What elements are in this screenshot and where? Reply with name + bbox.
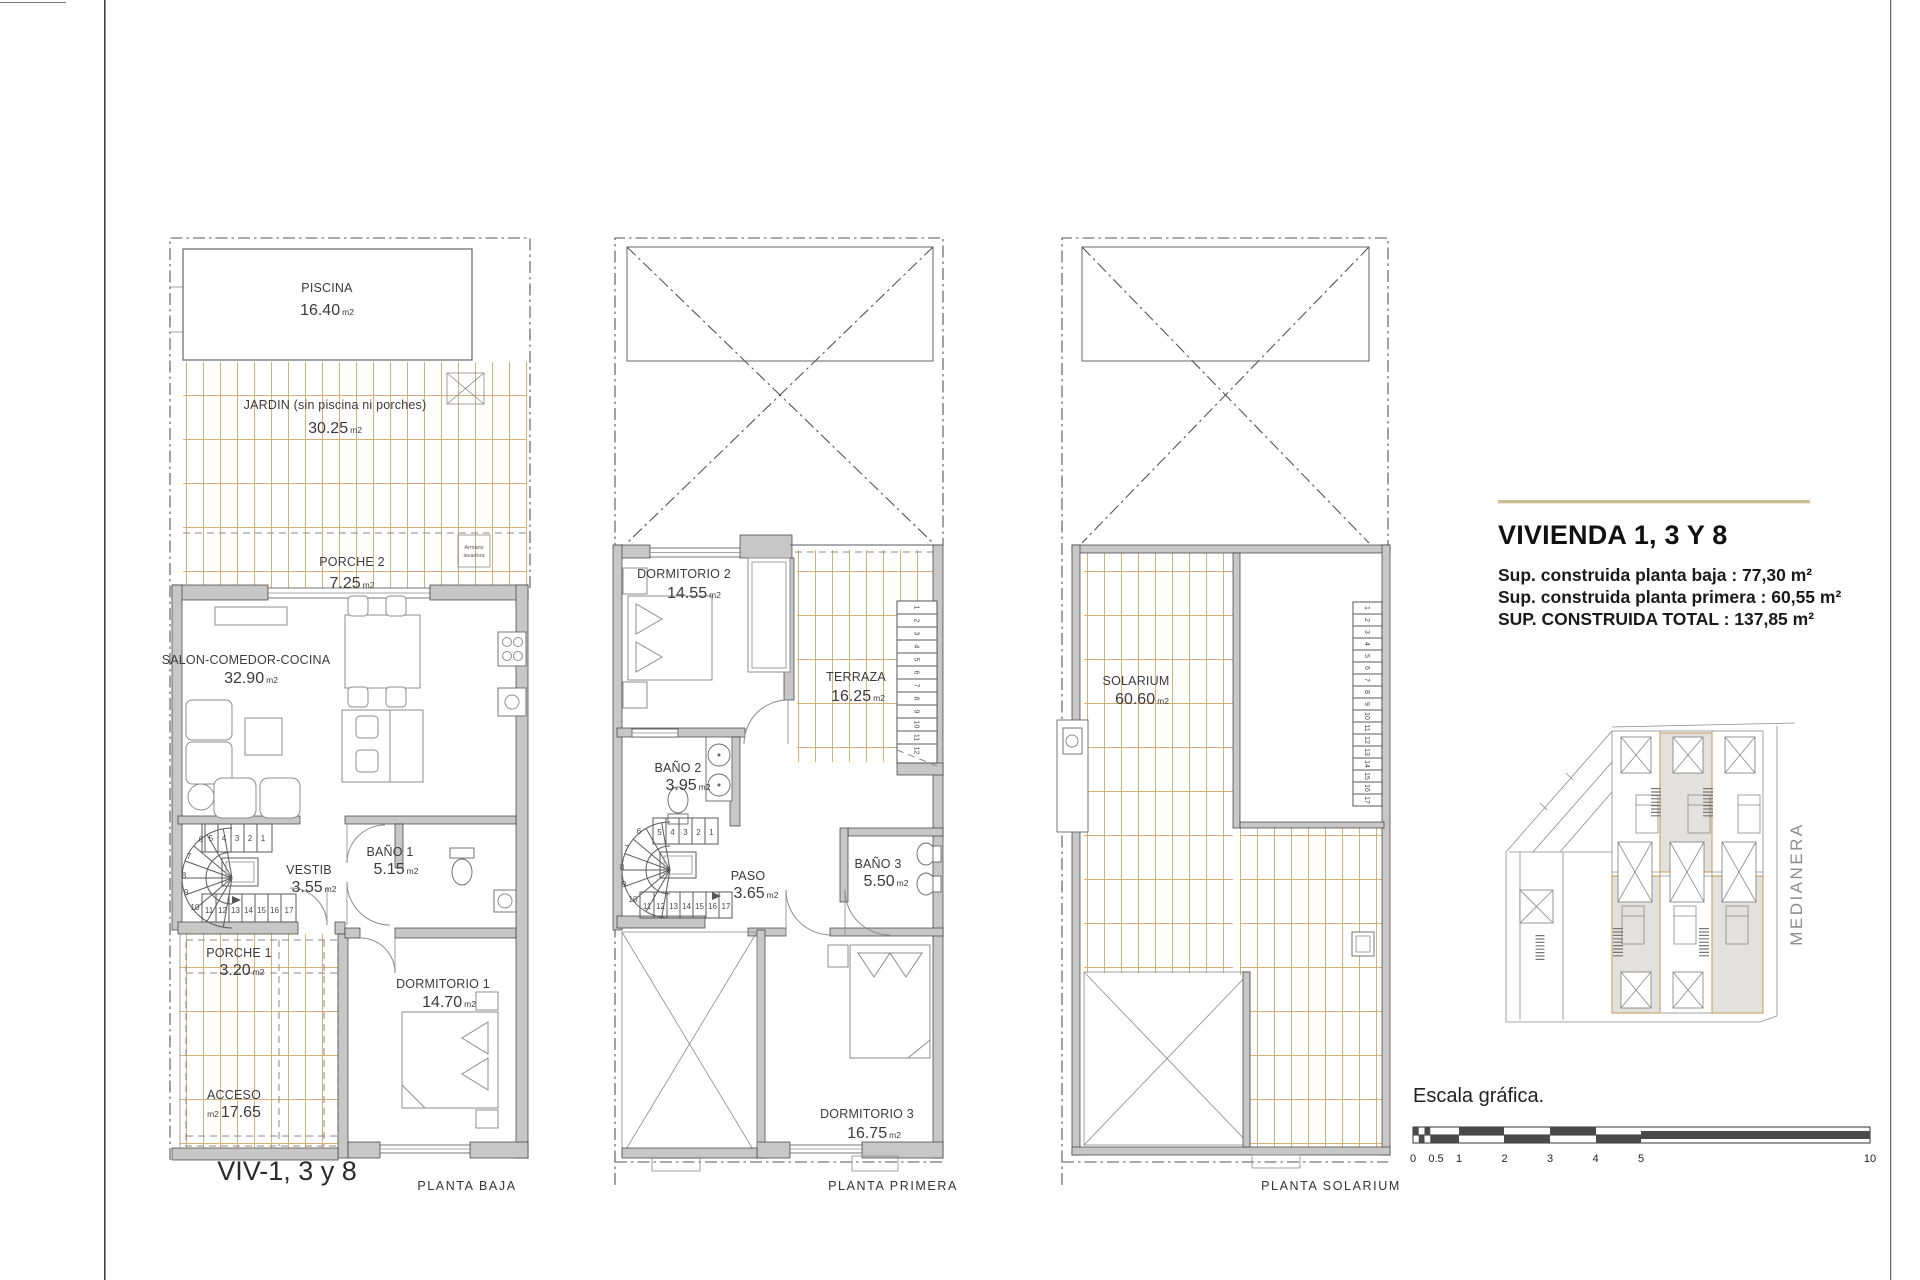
stair-num: 4 bbox=[222, 834, 227, 843]
stair-num: 4 bbox=[670, 828, 675, 837]
stair-num: 6 bbox=[1363, 666, 1370, 670]
accent-rule bbox=[1498, 500, 1810, 504]
stair-num: 8 bbox=[913, 697, 920, 701]
stair-num: 13 bbox=[669, 902, 678, 911]
stair-num: 11 bbox=[205, 906, 214, 915]
room-dorm2-name: DORMITORIO 2 bbox=[637, 567, 731, 581]
garage-void-primera bbox=[622, 932, 757, 1158]
graphic-scale-bar: 0 0.5 1 2 3 4 5 10 bbox=[1410, 1127, 1876, 1165]
scale-tick-0: 0 bbox=[1410, 1153, 1416, 1165]
stair-num: 12 bbox=[656, 902, 665, 911]
scale-caption: Escala gráfica. bbox=[1413, 1085, 1544, 1108]
stair-num: 3 bbox=[913, 632, 920, 636]
room-salon-area: 32.90m2 bbox=[224, 670, 278, 687]
stair-num: 10 bbox=[1363, 712, 1370, 720]
stair-num: 8 bbox=[620, 863, 625, 872]
stair-num: 14 bbox=[1363, 760, 1370, 768]
plan-drawing: Armario lavadora bbox=[0, 0, 1920, 1280]
closet-label-2: lavadora bbox=[463, 553, 485, 559]
site-building bbox=[1509, 731, 1763, 1020]
room-dorm1-area: 14.70m2 bbox=[422, 994, 476, 1011]
scale-tick-05: 0.5 bbox=[1428, 1153, 1443, 1165]
spec-planta-baja: Sup. construida planta baja : 77,30 m² bbox=[1498, 564, 1858, 586]
room-paso-name: PASO bbox=[731, 869, 766, 883]
stair-num: 14 bbox=[244, 906, 253, 915]
closet-label-1: Armario bbox=[464, 545, 483, 551]
stair-num: 9 bbox=[913, 710, 920, 714]
room-paso-area: 3.65m2 bbox=[734, 885, 779, 902]
spiral-stair-baja: 5 4 3 2 1 6 7 8 9 10 11 12 13 14 15 16 1… bbox=[182, 824, 296, 928]
room-terraza-name: TERRAZA bbox=[826, 670, 886, 684]
stair-num: 7 bbox=[187, 852, 192, 861]
stair-num: 6 bbox=[199, 835, 204, 844]
stair-num: 2 bbox=[248, 834, 253, 843]
room-porche2-name: PORCHE 2 bbox=[319, 555, 385, 569]
room-bano3-name: BAÑO 3 bbox=[854, 857, 901, 871]
room-bano1-area: 5.15m2 bbox=[374, 861, 419, 878]
room-jardin-name: JARDIN (sin piscina ni porches) bbox=[244, 398, 427, 412]
stair-num: 12 bbox=[218, 906, 227, 915]
stair-num: 5 bbox=[657, 828, 662, 837]
stair-num: 8 bbox=[182, 871, 187, 880]
stair-num: 2 bbox=[696, 828, 701, 837]
stair-num: 17 bbox=[285, 906, 294, 915]
stair-num: 13 bbox=[231, 906, 240, 915]
room-acceso-name: ACCESO bbox=[207, 1088, 261, 1102]
stair-num: 12 bbox=[913, 747, 920, 755]
medianera-label: MEDIANERA bbox=[1787, 822, 1806, 946]
stair-num: 10 bbox=[913, 721, 920, 729]
garage-void-solarium bbox=[1084, 972, 1250, 1147]
stair-num: 3 bbox=[235, 834, 240, 843]
scale-tick-2: 2 bbox=[1501, 1153, 1507, 1165]
scale-tick-10: 10 bbox=[1864, 1153, 1876, 1165]
stair-num: 1 bbox=[913, 606, 920, 610]
solarium-stair-strip: 1 2 3 4 5 6 7 8 9 10 11 12 13 14 15 16 1… bbox=[1353, 602, 1382, 806]
stair-num: 11 bbox=[643, 902, 652, 911]
dwelling-title: VIVIENDA 1, 3 Y 8 bbox=[1498, 520, 1858, 551]
scale-tick-1: 1 bbox=[1456, 1153, 1462, 1165]
living-room-furniture bbox=[186, 596, 526, 818]
floorplan-sheet: Armario lavadora bbox=[0, 0, 1920, 1280]
stair-num: 7 bbox=[625, 844, 630, 853]
stair-num: 8 bbox=[1363, 690, 1370, 694]
stair-num: 15 bbox=[257, 906, 266, 915]
stair-num: 6 bbox=[913, 671, 920, 675]
stair-num: 16 bbox=[270, 906, 279, 915]
info-panel: VIVIENDA 1, 3 Y 8 Sup. construida planta… bbox=[1498, 500, 1858, 630]
stair-num: 1 bbox=[709, 828, 714, 837]
floor-label-solarium: PLANTA SOLARIUM bbox=[1261, 1179, 1401, 1193]
spec-planta-primera: Sup. construida planta primera : 60,55 m… bbox=[1498, 586, 1858, 608]
stair-num: 15 bbox=[695, 902, 704, 911]
stair-num: 3 bbox=[683, 828, 688, 837]
room-piscina-name: PISCINA bbox=[301, 281, 353, 295]
stair-num: 13 bbox=[1363, 748, 1370, 756]
bedroom3-furniture bbox=[828, 945, 930, 1058]
room-dorm3-name: DORMITORIO 3 bbox=[820, 1107, 914, 1121]
scale-tick-5: 5 bbox=[1638, 1153, 1644, 1165]
stair-num: 6 bbox=[637, 827, 642, 836]
spec-total: SUP. CONSTRUIDA TOTAL : 137,85 m² bbox=[1498, 608, 1858, 630]
stair-num: 14 bbox=[682, 902, 691, 911]
plan-planta-baja: Armario lavadora bbox=[162, 238, 530, 1193]
site-key-plan: MEDIANERA bbox=[1506, 723, 1806, 1022]
room-bano2-area: 3.95m2 bbox=[666, 777, 711, 794]
room-dorm2-area: 14.55m2 bbox=[667, 585, 721, 602]
stair-num: 5 bbox=[209, 834, 214, 843]
room-bano3-area: 5.50m2 bbox=[864, 873, 909, 890]
stair-num: 15 bbox=[1363, 772, 1370, 780]
room-salon-name: SALON-COMEDOR-COCINA bbox=[162, 653, 331, 667]
room-porche1-name: PORCHE 1 bbox=[206, 946, 272, 960]
upper-stair-strip: 1 2 3 4 5 6 7 8 9 10 11 12 bbox=[897, 601, 937, 766]
stair-num: 2 bbox=[913, 619, 920, 623]
stair-num: 7 bbox=[913, 684, 920, 688]
spiral-stair-primera: 5 4 3 2 1 6 7 8 9 10 11 12 13 14 15 16 1… bbox=[620, 818, 732, 918]
stair-num: 11 bbox=[1363, 724, 1370, 731]
stair-num: 7 bbox=[1363, 678, 1370, 682]
plan-caption-viv: VIV-1, 3 y 8 bbox=[217, 1156, 357, 1186]
stair-num: 1 bbox=[261, 834, 266, 843]
room-bano1-name: BAÑO 1 bbox=[366, 845, 413, 859]
room-dorm1-name: DORMITORIO 1 bbox=[396, 977, 490, 991]
stair-num: 11 bbox=[913, 734, 920, 741]
stair-num: 3 bbox=[1363, 630, 1370, 634]
plan-planta-primera: 1 2 3 4 5 6 7 8 9 10 11 12 bbox=[613, 238, 958, 1193]
stair-num: 10 bbox=[191, 903, 200, 912]
stair-num: 4 bbox=[913, 645, 920, 649]
stair-num: 9 bbox=[184, 888, 189, 897]
stair-num: 12 bbox=[1363, 736, 1370, 744]
stair-num: 2 bbox=[1363, 618, 1370, 622]
floor-label-baja: PLANTA BAJA bbox=[417, 1179, 516, 1193]
stair-num: 17 bbox=[1363, 796, 1370, 804]
stair-num: 5 bbox=[1363, 654, 1370, 658]
stair-num: 4 bbox=[1363, 642, 1370, 646]
floor-label-primera: PLANTA PRIMERA bbox=[828, 1179, 958, 1193]
stair-num: 10 bbox=[629, 895, 638, 904]
room-vestib-area: 3.55m2 bbox=[292, 879, 337, 896]
stair-num: 1 bbox=[1363, 606, 1370, 610]
scale-tick-4: 4 bbox=[1592, 1153, 1598, 1165]
scale-tick-3: 3 bbox=[1547, 1153, 1553, 1165]
stair-num: 17 bbox=[722, 902, 731, 911]
room-solarium-name: SOLARIUM bbox=[1103, 674, 1170, 688]
room-dorm3-area: 16.75m2 bbox=[847, 1125, 901, 1142]
plan-planta-solarium: 1 2 3 4 5 6 7 8 9 10 11 12 13 14 15 16 1… bbox=[1057, 238, 1401, 1193]
stair-num: 5 bbox=[913, 658, 920, 662]
room-vestib-name: VESTIB bbox=[286, 863, 332, 877]
room-bano2-name: BAÑO 2 bbox=[654, 761, 701, 775]
bedroom1-furniture bbox=[402, 992, 498, 1128]
stair-num: 16 bbox=[708, 902, 717, 911]
stair-num: 16 bbox=[1363, 784, 1370, 792]
stair-num: 9 bbox=[1363, 702, 1370, 706]
stair-num: 9 bbox=[622, 880, 627, 889]
